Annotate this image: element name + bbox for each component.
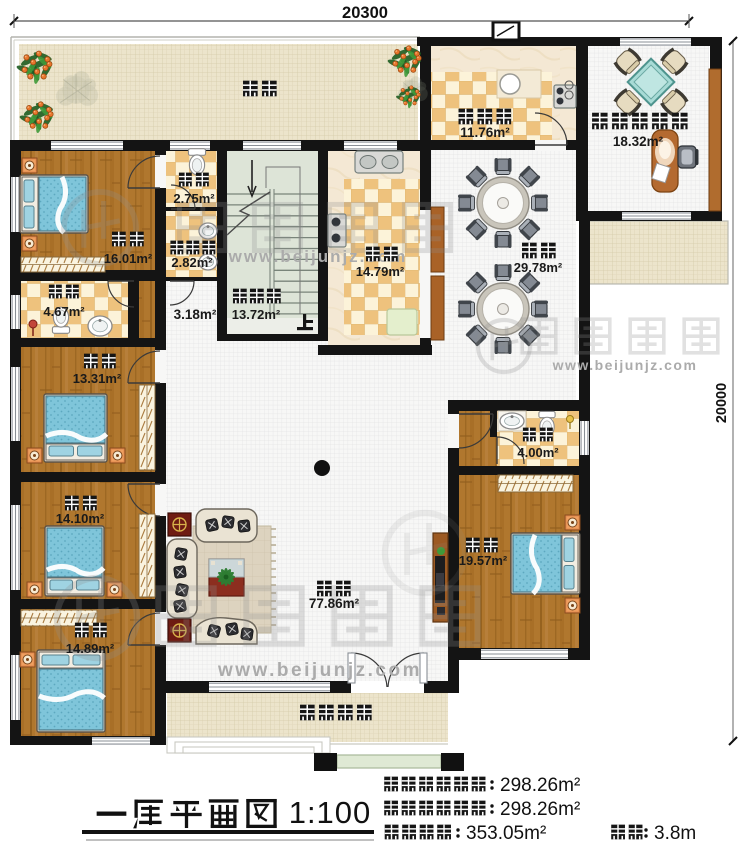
svg-text:14.79m²: 14.79m² [356,264,405,279]
svg-text:2.75m²: 2.75m² [173,191,215,206]
svg-text:4.00m²: 4.00m² [517,445,559,460]
svg-text:29.78m²: 29.78m² [514,260,563,275]
svg-text:13.72m²: 13.72m² [232,307,281,322]
svg-text:4.67m²: 4.67m² [43,304,85,319]
svg-text:2.82m²: 2.82m² [171,255,213,270]
svg-text:18.32m²: 18.32m² [613,134,664,149]
svg-text:www.beijunjz.com: www.beijunjz.com [217,660,422,681]
svg-text:3.8m: 3.8m [654,823,696,844]
svg-text:353.05m²: 353.05m² [466,823,546,844]
svg-text:3.18m²: 3.18m² [174,307,217,322]
svg-text:1:100: 1:100 [289,795,372,830]
svg-text:13.31m²: 13.31m² [73,371,122,386]
svg-text:298.26m²: 298.26m² [500,799,580,820]
svg-text:11.76m²: 11.76m² [460,125,510,140]
svg-text:www.beijunjz.com: www.beijunjz.com [552,357,698,373]
svg-text:14.10m²: 14.10m² [56,511,105,526]
svg-text:19.57m²: 19.57m² [459,553,508,568]
svg-text:16.01m²: 16.01m² [104,251,153,266]
svg-text:77.86m²: 77.86m² [309,596,360,611]
svg-text:20000: 20000 [714,383,730,423]
svg-text:298.26m²: 298.26m² [500,775,580,796]
svg-text:14.89m²: 14.89m² [66,641,115,656]
svg-text:20300: 20300 [342,4,388,22]
